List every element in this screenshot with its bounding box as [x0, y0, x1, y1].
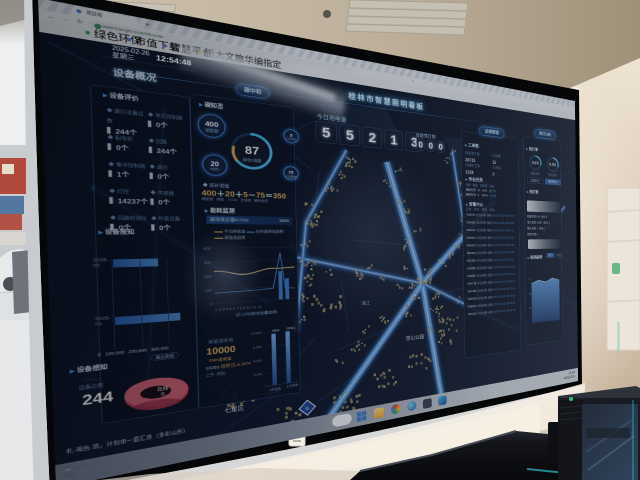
- svg-text:G: G: [305, 406, 309, 411]
- svg-text:1 2 3 4 5 6 7 8 9 10 11 12: 1 2 3 4 5 6 7 8 9 10 11 12: [215, 305, 262, 312]
- svg-text:9,000: 9,000: [253, 345, 262, 349]
- svg-text:10: 10: [529, 307, 531, 310]
- svg-text:近12月碳排放量趋势: 近12月碳排放量趋势: [236, 309, 278, 317]
- svg-text:400: 400: [203, 247, 211, 251]
- svg-text:10,000: 10,000: [251, 331, 262, 335]
- svg-text:0: 0: [210, 303, 213, 307]
- svg-text:30: 30: [528, 278, 530, 281]
- svg-text:100: 100: [205, 289, 212, 293]
- svg-text:8,000: 8,000: [254, 359, 263, 363]
- svg-text:穿山公园: 穿山公园: [406, 334, 424, 342]
- svg-text:200: 200: [204, 275, 212, 279]
- svg-text:0.0%: 0.0%: [532, 161, 539, 166]
- svg-text:87: 87: [245, 144, 260, 158]
- svg-text:漓江: 漓江: [361, 300, 369, 306]
- svg-text:0.0%: 0.0%: [549, 162, 556, 167]
- svg-text:5,000: 5,000: [254, 373, 263, 377]
- svg-text:300: 300: [204, 261, 212, 265]
- svg-text:3月用电: 3月用电: [269, 386, 281, 392]
- svg-text:0: 0: [161, 392, 165, 397]
- svg-text:9841: 9841: [272, 329, 280, 333]
- svg-text:20: 20: [529, 292, 531, 295]
